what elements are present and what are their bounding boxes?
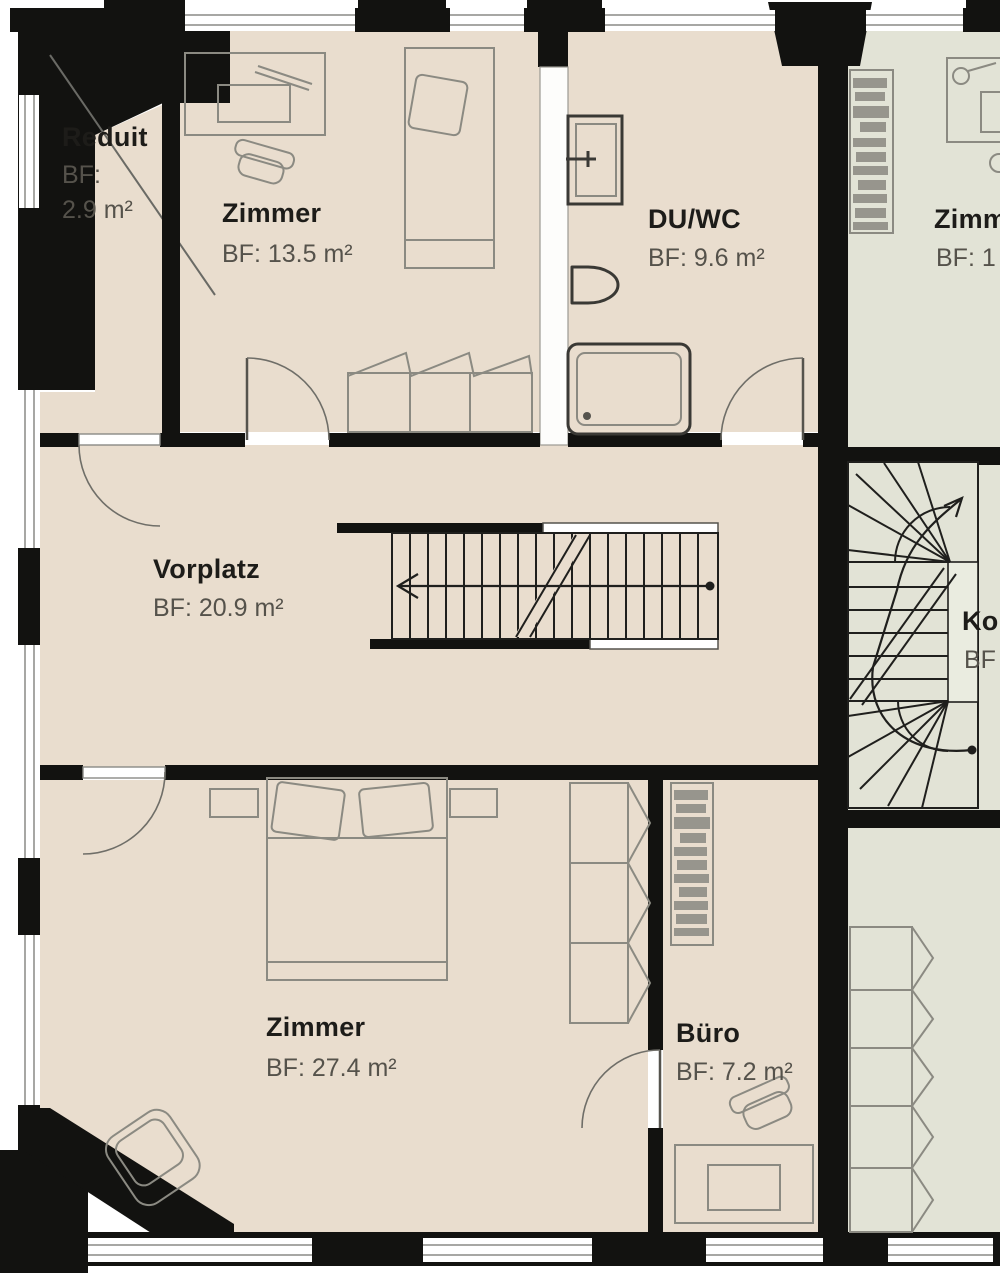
- window-left-mid: [19, 645, 39, 858]
- label-du-wc-name: DU/WC: [648, 204, 741, 234]
- shower: [568, 344, 690, 434]
- label-vorplatz-area: BF: 20.9 m²: [153, 594, 284, 622]
- label-du-wc-area: BF: 9.6 m²: [648, 244, 765, 272]
- label-neighbor-korridor-name: Ko: [962, 606, 999, 636]
- label-neighbor-zimmer-area: BF: 1: [936, 244, 996, 272]
- label-vorplatz-name: Vorplatz: [153, 554, 260, 584]
- label-zimmer-b-area: BF: 27.4 m²: [266, 1054, 397, 1082]
- window-top-zimmer-a: [185, 10, 355, 31]
- window-bottom-1: [88, 1238, 312, 1262]
- label-buero-name: Büro: [676, 1018, 740, 1048]
- label-reduit-name: Reduit: [62, 122, 148, 152]
- label-reduit-area: 2.9 m²: [62, 196, 133, 224]
- stairs-neighbor: [848, 462, 978, 808]
- label-zimmer-b-name: Zimmer: [266, 1012, 366, 1042]
- window-top-du-wc: [605, 10, 775, 31]
- label-reduit-bf: BF:: [62, 161, 101, 189]
- label-zimmer-a-name: Zimmer: [222, 198, 322, 228]
- floorplan-page: Reduit BF: 2.9 m² Zimmer BF: 13.5 m² DU/…: [0, 0, 1000, 1273]
- inter-unit-wall: [818, 60, 848, 1240]
- window-top-small: [450, 10, 524, 31]
- floorplan-drawing: Reduit BF: 2.9 m² Zimmer BF: 13.5 m² DU/…: [0, 0, 1000, 1273]
- washbasin: [566, 116, 622, 204]
- label-neighbor-zimmer-name: Zimm: [934, 204, 1000, 234]
- window-left-zimmer-b: [19, 935, 39, 1105]
- bookshelf: [850, 70, 893, 233]
- window-left-reduit: [19, 95, 39, 208]
- chimney-mass: [768, 2, 872, 66]
- window-bottom-4: [888, 1238, 993, 1262]
- window-bottom-3: [706, 1238, 823, 1262]
- window-top-neighbor: [866, 10, 963, 31]
- label-buero-area: BF: 7.2 m²: [676, 1058, 793, 1086]
- toilet: [572, 267, 618, 303]
- window-bottom-2: [423, 1238, 592, 1262]
- stairs-main: [392, 533, 718, 639]
- label-neighbor-korridor-area: BF: [964, 646, 996, 674]
- window-left-vorplatz: [19, 390, 39, 548]
- label-zimmer-a-area: BF: 13.5 m²: [222, 240, 353, 268]
